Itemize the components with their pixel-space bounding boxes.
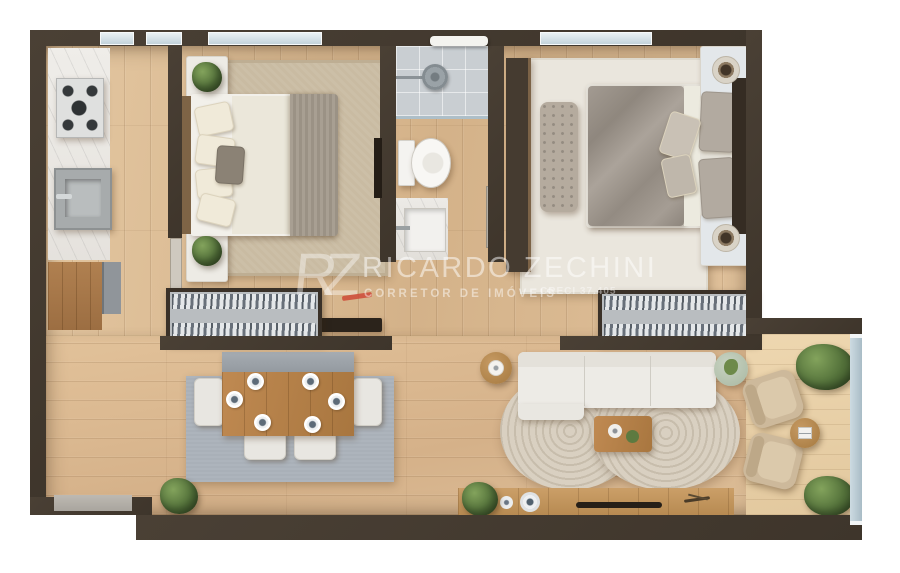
green-pouf (714, 352, 748, 386)
wall-top (30, 30, 762, 46)
lamp-side-table (480, 352, 512, 384)
bedroom1-wall-tv (374, 138, 382, 198)
wall-balcony-top (746, 318, 862, 334)
balcony-side-table (790, 418, 820, 448)
sofa-back (518, 352, 716, 367)
place-setting (226, 391, 243, 408)
potted-plant (160, 478, 198, 514)
tufted-bench (540, 102, 578, 212)
kitchen-sink (54, 168, 112, 230)
sofa (518, 352, 716, 408)
wall-divider-right (560, 336, 762, 350)
wall-bedroom1-bath (380, 46, 396, 262)
kitchen-window (100, 32, 134, 45)
wall-right-upper (746, 30, 762, 336)
book-row (172, 294, 316, 309)
wall-divider-left (160, 336, 392, 350)
coffee-table-dish (608, 424, 622, 438)
place-setting (302, 373, 319, 390)
table-lamp (488, 360, 504, 376)
dining-chair (352, 378, 382, 426)
armchair-cushion (756, 439, 798, 484)
bedroom2-window (540, 32, 652, 45)
tv-panel (318, 318, 382, 332)
decor-vase (520, 492, 540, 512)
toilet-bowl (411, 138, 451, 188)
potted-plant (796, 344, 854, 390)
table-runner (222, 352, 354, 372)
vanity-basin (404, 208, 446, 252)
kitchen-window (146, 32, 182, 45)
bathroom-towel-rail (430, 36, 488, 46)
bathroom-vanity (396, 198, 448, 260)
decor-vase (500, 496, 513, 509)
place-setting (247, 373, 264, 390)
bedroom1-duvet (290, 94, 338, 236)
potted-plant (462, 482, 498, 516)
place-setting (254, 414, 271, 431)
potted-plant (192, 62, 222, 92)
potted-plant (804, 476, 854, 516)
decor-tray (712, 224, 740, 252)
potted-plant (192, 236, 222, 266)
bed-accent-pillow (215, 145, 246, 185)
place-setting (304, 416, 321, 433)
bedroom1-headboard (182, 96, 191, 234)
wall-bottom (136, 515, 862, 540)
sink-faucet (56, 194, 72, 199)
decor-tray (712, 56, 740, 84)
floor-plan-render: RZ RICARDO ZECHINI CORRETOR DE IMÓVEIS C… (0, 0, 900, 573)
coffee-table-plant (626, 430, 639, 443)
dining-chair (194, 378, 224, 426)
entry-threshold (54, 495, 132, 511)
media-slot (576, 502, 662, 508)
pouf-plant-sprig (724, 359, 738, 375)
sofa-seam (584, 356, 585, 406)
book-row (604, 296, 750, 310)
sofa-chaise (518, 404, 584, 420)
wall-left (30, 30, 46, 515)
wall-kitchen-bedroom1 (168, 46, 182, 238)
side-table-book (798, 427, 812, 439)
vanity-faucet (396, 226, 410, 230)
coffee-table (594, 416, 652, 452)
kitchen-cabinet (48, 262, 102, 330)
wall-bath-bedroom2 (488, 46, 504, 262)
sofa-seam (650, 356, 651, 406)
gas-cooktop (56, 78, 104, 138)
bedroom2-headboard (732, 78, 746, 234)
shower (396, 46, 488, 119)
bedroom1-window (208, 32, 322, 45)
wardrobe (506, 58, 531, 272)
media-bench (458, 488, 734, 518)
refrigerator (102, 262, 121, 314)
shower-head (422, 64, 448, 90)
glass-railing (850, 334, 862, 525)
place-setting (328, 393, 345, 410)
